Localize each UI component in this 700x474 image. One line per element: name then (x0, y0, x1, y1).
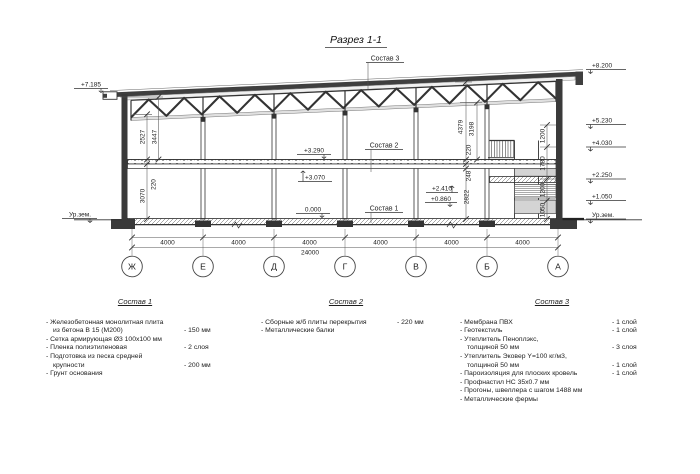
span-dim: 4000 (515, 240, 530, 247)
elev-right-0: +8.200 (592, 63, 612, 70)
dim-220-right: 220 (466, 144, 473, 155)
axis-label: Д (271, 262, 277, 272)
list-item: - Железобетонная монолитная плитаиз бето… (46, 319, 224, 336)
elev-slab-bottom: +3.070 (305, 175, 325, 182)
dim-1780: 1780 (540, 156, 547, 171)
span-dim: 4000 (160, 240, 175, 247)
composition-2-title: Состав 2 (261, 298, 431, 307)
floor-slab (128, 160, 557, 169)
axis-label: Г (343, 262, 348, 272)
list-item: - Металлические балки (261, 327, 431, 336)
axis-label: А (555, 262, 561, 272)
elev-right-1: +5.230 (592, 118, 612, 125)
left-wall (122, 94, 128, 219)
section-drawing: Разрез 1-1 (0, 0, 700, 292)
drawing-sheet: { "drawing_title": "Разрез 1-1", "sectio… (0, 0, 700, 474)
callout-sostav1: Состав 1 (370, 206, 399, 213)
total-dim: 24000 (301, 250, 319, 257)
axis-label: Ж (128, 262, 136, 272)
span-dim: 4000 (302, 240, 317, 247)
dim-220-left: 220 (151, 179, 158, 190)
dim-1200-b: 1200 (540, 182, 547, 197)
elev-floor-zero: 0.000 (305, 207, 322, 214)
elev-right-2: +4.030 (592, 140, 612, 147)
axis-label: Е (200, 262, 206, 272)
callout-sostav3: Состав 3 (371, 56, 400, 63)
elev-stair-upper: +2.410 (432, 186, 452, 193)
list-item: - Пленка полиэтиленовая - 2 слоя (46, 344, 224, 353)
dim-3447: 3447 (152, 129, 159, 144)
list-item: - Сетка армирующая Ø3 100х100 мм (46, 336, 224, 345)
span-dim: 4000 (231, 240, 246, 247)
axis-label: Б (484, 262, 490, 272)
floor-beams (128, 164, 557, 169)
list-item: - Металлические фермы (460, 396, 644, 405)
elev-left-ground: Ур.зем. (69, 212, 91, 219)
composition-3-title: Состав 3 (460, 298, 644, 307)
list-item: - Утеплитель Эковер Y=100 кг/м3,толщиной… (460, 353, 644, 370)
dim-3070: 3070 (140, 188, 147, 203)
list-item: - Геотекстиль - 1 слой (460, 327, 644, 336)
list-item: - Профнастил НС 35х0.7 мм (460, 379, 644, 388)
left-foundation (111, 219, 135, 229)
right-foundation (550, 219, 577, 229)
composition-list-2: Состав 2 - Сборные ж/б плиты перекрытия … (261, 298, 431, 336)
page-title: Разрез 1-1 (330, 34, 382, 46)
composition-1-title: Состав 1 (46, 298, 224, 307)
vertical-dimensions: 2527 3447 220 3070 4379 3198 220 248 282… (120, 79, 556, 222)
dim-4379: 4379 (458, 119, 465, 134)
elev-slab-top: +3.290 (304, 148, 324, 155)
dim-1050: 1050 (540, 202, 547, 217)
roof (103, 70, 583, 100)
dim-2527: 2527 (140, 129, 147, 144)
dim-1200-a: 1200 (540, 128, 547, 143)
list-item: - Подготовка из песка среднейкрупности -… (46, 353, 224, 370)
dim-3198: 3198 (469, 121, 476, 136)
axis-bubbles: Ж Е Д Г В Б А (122, 256, 569, 277)
axis-label: В (413, 262, 419, 272)
list-item: - Сборные ж/б плиты перекрытия - 220 мм (261, 319, 431, 328)
list-item: - Грунт основания (46, 370, 224, 379)
span-dim: 4000 (373, 240, 388, 247)
composition-list-1: Состав 1 - Железобетонная монолитная пли… (46, 298, 224, 379)
dim-248: 248 (466, 170, 473, 181)
composition-list-3: Состав 3 - Мембрана ПВХ - 1 слой - Геоте… (460, 298, 644, 405)
horizontal-dimensions: 4000 4000 4000 4000 4000 4000 24000 (129, 229, 561, 257)
stair-railing-bars (492, 141, 514, 157)
elev-stair-lower: +0.860 (431, 196, 451, 203)
list-item: - Прогоны, швеллера с шагом 1488 мм (460, 387, 644, 396)
list-item: - Мембрана ПВХ - 1 слой (460, 319, 644, 328)
elev-right-3: +2.250 (592, 172, 612, 179)
right-wall (556, 79, 563, 219)
elev-right-4: +1.050 (592, 194, 612, 201)
list-item: - Утеплитель Пеноплэкс,толщиной 50 мм - … (460, 336, 644, 353)
span-dim: 4000 (444, 240, 459, 247)
ground-slab (74, 219, 642, 230)
dim-2822: 2822 (464, 189, 471, 204)
callout-sostav2: Состав 2 (370, 143, 399, 150)
list-item: - Пароизоляция для плоских кровель - 1 с… (460, 370, 644, 379)
roof-fascia (576, 72, 584, 85)
elev-left-roof: +7.185 (81, 82, 101, 89)
elev-right-5: Ур.зем. (592, 212, 614, 219)
